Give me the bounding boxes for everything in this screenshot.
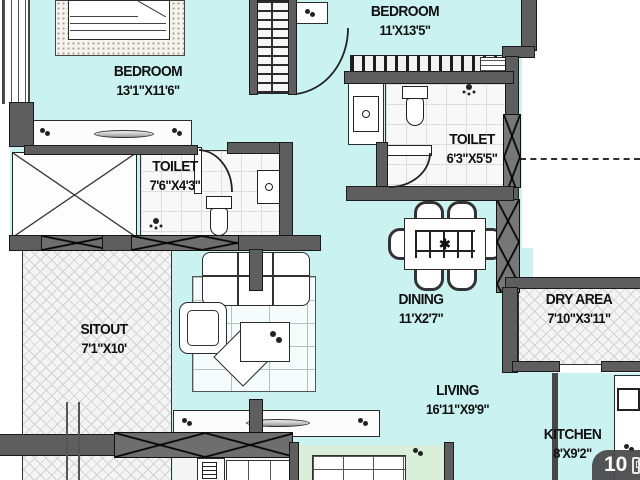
washbasin-icon bbox=[257, 170, 281, 204]
wall bbox=[602, 362, 640, 371]
appliance-icon bbox=[202, 462, 217, 479]
sofa-cushion-divider bbox=[272, 253, 274, 305]
room-label-dry-area: DRY AREA 7'10"X3'11" bbox=[523, 291, 635, 327]
room-name: KITCHEN bbox=[533, 426, 611, 445]
room-dims: 13'1"X11'6" bbox=[93, 82, 203, 100]
dresser-handle-icon bbox=[94, 130, 154, 138]
lower-desk bbox=[312, 455, 406, 480]
wall bbox=[250, 0, 257, 94]
wall bbox=[503, 288, 517, 372]
door-hinge-icon bbox=[624, 444, 629, 449]
exterior-top-right bbox=[536, 0, 640, 50]
room-dims: 11'X2'7" bbox=[384, 310, 458, 328]
shower-icon bbox=[466, 84, 472, 90]
armchair bbox=[179, 302, 227, 354]
exterior-right bbox=[533, 50, 640, 283]
duct-shaft bbox=[12, 152, 137, 238]
wall bbox=[506, 278, 640, 288]
wall bbox=[445, 443, 453, 480]
room-dims: 7'1"X10' bbox=[65, 340, 142, 358]
beam-hatch bbox=[42, 236, 102, 250]
coffee-table bbox=[240, 322, 290, 362]
wall bbox=[250, 250, 262, 290]
wall bbox=[289, 0, 296, 94]
room-dims: 11'X13'5" bbox=[350, 22, 460, 40]
room-label-bedroom1: BEDROOM 13'1"X11'6" bbox=[93, 63, 203, 99]
wall bbox=[377, 143, 387, 187]
room-label-living: LIVING 16'11"X9'9" bbox=[405, 382, 511, 418]
foyer-wardrobe bbox=[257, 0, 291, 94]
basin-drain-icon bbox=[362, 110, 370, 118]
boundary-dashed-line bbox=[520, 158, 640, 162]
door-hinge-icon bbox=[182, 418, 187, 423]
dining-table: ✱ bbox=[404, 218, 486, 270]
door-hinge-icon bbox=[172, 128, 177, 133]
bed-pillow-fold bbox=[138, 1, 166, 17]
room-dims: 7'6"X4'3" bbox=[140, 177, 210, 195]
basin-drain-icon bbox=[265, 183, 273, 191]
floor-plan: ✱ bbox=[0, 0, 640, 480]
wall bbox=[345, 72, 513, 83]
photo-count: 10 bbox=[592, 453, 627, 477]
wall bbox=[513, 362, 559, 371]
decor-icon bbox=[270, 331, 276, 337]
room-dims: 7'10"X3'11" bbox=[523, 310, 635, 328]
room-name: DRY AREA bbox=[523, 291, 635, 310]
gallery-icon bbox=[632, 457, 640, 474]
photo-count-badge[interactable]: 10 bbox=[592, 450, 640, 480]
kitchen-sink bbox=[617, 388, 640, 411]
bed-sheet-lines bbox=[70, 15, 166, 37]
lower-shelf bbox=[226, 460, 290, 480]
armchair-cushion bbox=[187, 310, 219, 346]
beam-hatch bbox=[115, 433, 292, 457]
wall bbox=[522, 0, 536, 50]
room-name: SITOUT bbox=[65, 321, 142, 340]
door-hinge-icon bbox=[413, 448, 418, 453]
door-hinge-icon bbox=[358, 418, 363, 423]
door-hinge-icon bbox=[305, 9, 310, 14]
room-dims: 16'11"X9'9" bbox=[405, 401, 511, 419]
wall bbox=[290, 443, 298, 480]
wall bbox=[347, 187, 513, 200]
room-name: LIVING bbox=[405, 382, 511, 401]
room-label-toilet1: TOILET 7'6"X4'3" bbox=[140, 158, 210, 194]
foyer-cabinet bbox=[296, 2, 328, 24]
room-dims: 6'3"X5'5" bbox=[438, 150, 506, 168]
room-label-toilet2: TOILET 6'3"X5'5" bbox=[438, 131, 506, 167]
room-name: TOILET bbox=[140, 158, 210, 177]
room-label-sitout: SITOUT 7'1"X10' bbox=[65, 321, 142, 357]
column bbox=[504, 115, 520, 187]
wall bbox=[503, 47, 534, 57]
washbasin-icon bbox=[353, 96, 379, 132]
room-name: DINING bbox=[384, 291, 458, 310]
bedroom1-window bbox=[2, 0, 30, 104]
toilet2-door-leaf bbox=[387, 145, 432, 156]
sofa-cushion-divider bbox=[237, 253, 239, 305]
bedroom1-dresser bbox=[33, 120, 192, 148]
door-hinge-icon bbox=[40, 128, 45, 133]
room-name: BEDROOM bbox=[350, 3, 460, 22]
wall bbox=[25, 146, 197, 154]
beam-hatch bbox=[132, 236, 238, 250]
wc-icon bbox=[406, 98, 424, 126]
room-label-dining: DINING 11'X2'7" bbox=[384, 291, 458, 327]
lower-cabinet bbox=[197, 458, 225, 480]
wall bbox=[250, 400, 262, 436]
wc-icon bbox=[210, 208, 228, 236]
room-name: BEDROOM bbox=[93, 63, 203, 82]
dining-table-center-icon: ✱ bbox=[439, 237, 451, 251]
room-label-bedroom2: BEDROOM 11'X13'5" bbox=[350, 3, 460, 39]
sitout-railing bbox=[66, 402, 80, 480]
wall bbox=[10, 103, 33, 146]
shower-icon bbox=[153, 218, 159, 224]
wall bbox=[280, 143, 292, 242]
room-name: TOILET bbox=[438, 131, 506, 150]
